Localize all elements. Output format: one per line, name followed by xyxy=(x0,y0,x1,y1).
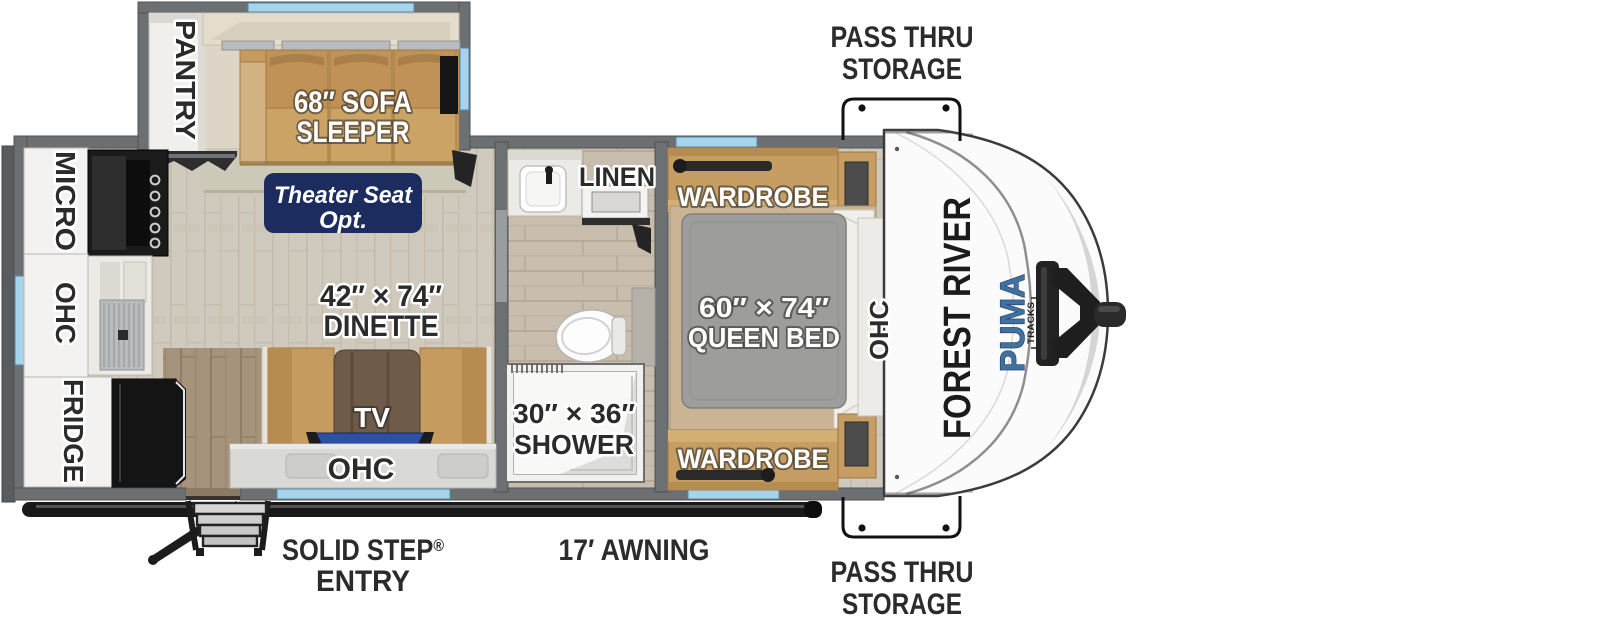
svg-text:PASS THRU: PASS THRU xyxy=(831,21,974,54)
svg-text:QUEEN BED: QUEEN BED xyxy=(688,322,840,353)
svg-text:WARDROBE: WARDROBE xyxy=(678,182,829,212)
svg-text:FRIDGE: FRIDGE xyxy=(58,379,89,483)
svg-text:STORAGE: STORAGE xyxy=(842,588,962,621)
svg-text:ENTRY: ENTRY xyxy=(316,565,410,598)
svg-text:Theater Seat: Theater Seat xyxy=(274,182,413,209)
svg-text:30″ × 36″: 30″ × 36″ xyxy=(513,398,635,429)
svg-text:FOREST RIVER: FOREST RIVER xyxy=(937,197,979,439)
svg-text:17′ AWNING: 17′ AWNING xyxy=(559,534,710,567)
svg-text:PANTRY: PANTRY xyxy=(170,20,201,140)
svg-text:Opt.: Opt. xyxy=(319,207,367,234)
svg-text:SHOWER: SHOWER xyxy=(514,429,634,460)
svg-text:PASS THRU: PASS THRU xyxy=(831,556,974,589)
svg-text:STORAGE: STORAGE xyxy=(842,53,962,86)
svg-text:LINEN: LINEN xyxy=(579,162,655,192)
svg-text:WARDROBE: WARDROBE xyxy=(678,444,829,474)
svg-text:SLEEPER: SLEEPER xyxy=(297,116,410,149)
svg-text:SOLID STEP®: SOLID STEP® xyxy=(282,534,444,567)
svg-text:68″ SOFA: 68″ SOFA xyxy=(294,86,412,119)
svg-text:OHC: OHC xyxy=(328,453,395,486)
svg-text:TRACKS: TRACKS xyxy=(1026,302,1036,344)
svg-text:OHC: OHC xyxy=(50,282,81,344)
svg-text:MICRO: MICRO xyxy=(50,151,81,251)
svg-text:42″ × 74″: 42″ × 74″ xyxy=(320,280,442,313)
svg-text:TV: TV xyxy=(354,402,390,433)
svg-text:OHC: OHC xyxy=(864,300,894,360)
svg-text:DINETTE: DINETTE xyxy=(324,310,439,343)
svg-text:60″ × 74″: 60″ × 74″ xyxy=(699,292,829,323)
